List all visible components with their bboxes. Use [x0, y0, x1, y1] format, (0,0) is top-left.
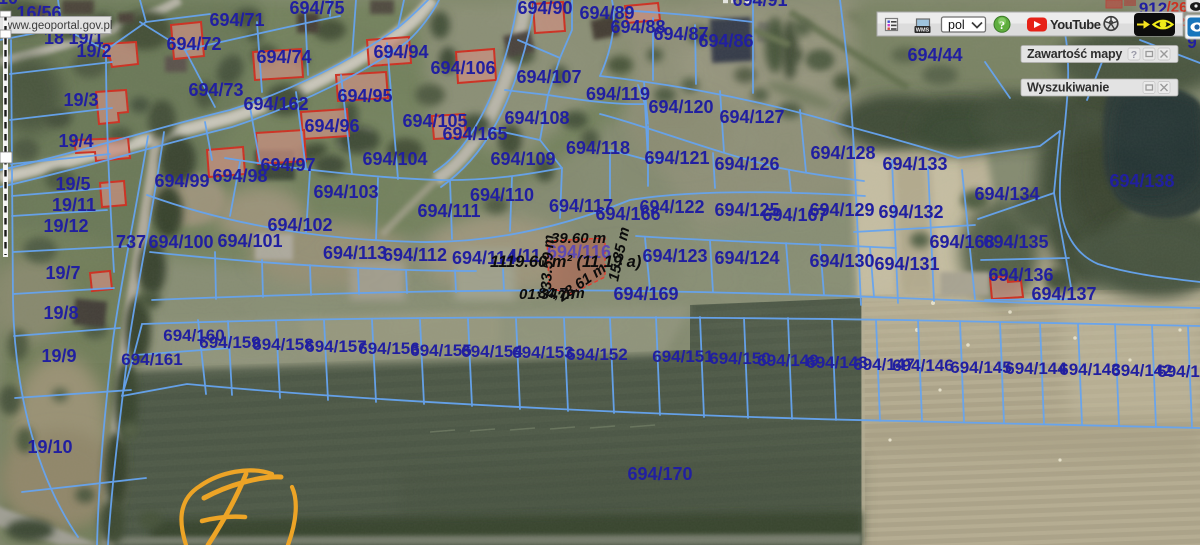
- svg-text:694/132: 694/132: [878, 202, 943, 222]
- svg-text:694/123: 694/123: [642, 246, 707, 266]
- svg-text:19/8: 19/8: [43, 303, 78, 323]
- svg-text:694/74: 694/74: [256, 47, 311, 67]
- svg-text:694/112: 694/112: [383, 245, 447, 265]
- svg-text:694/118: 694/118: [566, 138, 630, 158]
- svg-text:694/100: 694/100: [148, 232, 213, 252]
- svg-text:694/73: 694/73: [188, 80, 243, 100]
- svg-text:694/107: 694/107: [516, 67, 581, 87]
- svg-text:694/119: 694/119: [586, 84, 650, 104]
- svg-text:694/106: 694/106: [430, 58, 495, 78]
- svg-text:694/145: 694/145: [950, 358, 1011, 377]
- svg-text:www.geoportal.gov.pl: www.geoportal.gov.pl: [3, 20, 112, 32]
- svg-text:19/3: 19/3: [63, 90, 98, 110]
- svg-text:694/91: 694/91: [732, 0, 787, 10]
- svg-text:694/134: 694/134: [974, 184, 1039, 204]
- svg-text:694/131: 694/131: [874, 254, 939, 274]
- svg-text:694/120: 694/120: [648, 97, 713, 117]
- svg-text:19/4: 19/4: [58, 131, 93, 151]
- svg-text:694/161: 694/161: [121, 350, 182, 369]
- svg-text:694/121: 694/121: [644, 148, 709, 168]
- svg-text:694/103: 694/103: [313, 182, 378, 202]
- svg-text:694/137: 694/137: [1031, 284, 1096, 304]
- svg-text:694/95: 694/95: [337, 86, 392, 106]
- svg-text:694/133: 694/133: [882, 154, 947, 174]
- svg-text:694/169: 694/169: [613, 284, 678, 304]
- svg-text:694/124: 694/124: [714, 248, 779, 268]
- svg-text:694/135: 694/135: [983, 232, 1048, 252]
- svg-text:694/146: 694/146: [892, 356, 953, 375]
- svg-text:694/109: 694/109: [490, 149, 555, 169]
- svg-text:10: 10: [0, 0, 18, 8]
- svg-text:737: 737: [116, 232, 146, 252]
- svg-text:19/5: 19/5: [55, 174, 90, 194]
- svg-text:pol: pol: [948, 18, 965, 32]
- svg-text:WMS: WMS: [916, 28, 930, 34]
- svg-text:694/101: 694/101: [217, 231, 282, 251]
- svg-text:694/165: 694/165: [442, 124, 507, 144]
- svg-text:694/152: 694/152: [566, 345, 627, 364]
- svg-text:694/153: 694/153: [512, 343, 573, 362]
- svg-text:694/90: 694/90: [517, 0, 572, 18]
- svg-text:694/151: 694/151: [652, 347, 713, 366]
- svg-text:694/71: 694/71: [209, 10, 264, 30]
- svg-text:694/104: 694/104: [362, 149, 427, 169]
- svg-text:84,7 m: 84,7 m: [538, 285, 585, 302]
- svg-text:19/9: 19/9: [41, 346, 76, 366]
- svg-text:694/108: 694/108: [504, 108, 569, 128]
- svg-text:694/126: 694/126: [714, 154, 779, 174]
- svg-text:Zawartość mapy: Zawartość mapy: [1027, 47, 1122, 61]
- svg-text:694/136: 694/136: [988, 265, 1053, 285]
- svg-text:694/144: 694/144: [1005, 359, 1067, 378]
- svg-text:19/2: 19/2: [76, 41, 111, 61]
- svg-text:19/10: 19/10: [27, 437, 72, 457]
- svg-text:YouTube: YouTube: [1050, 17, 1101, 32]
- svg-text:694/170: 694/170: [627, 464, 692, 484]
- svg-text:694/127: 694/127: [719, 107, 784, 127]
- svg-text:694/130: 694/130: [809, 251, 874, 271]
- svg-text:694/122: 694/122: [639, 197, 704, 217]
- svg-text:694/98: 694/98: [212, 166, 267, 186]
- svg-text:?: ?: [1131, 49, 1137, 61]
- svg-text:694/99: 694/99: [154, 171, 209, 191]
- svg-text:33.59 m: 33.59 m: [538, 234, 558, 290]
- svg-text:694/72: 694/72: [166, 34, 221, 54]
- svg-text:694/94: 694/94: [373, 42, 428, 62]
- svg-text:694/138: 694/138: [1109, 171, 1174, 191]
- svg-text:694/86: 694/86: [698, 31, 753, 51]
- svg-text:694/44: 694/44: [907, 45, 962, 65]
- svg-text:?: ?: [999, 18, 1005, 32]
- svg-text:694/96: 694/96: [304, 116, 359, 136]
- svg-text:694/129: 694/129: [809, 200, 874, 220]
- svg-text:694/113: 694/113: [323, 243, 387, 263]
- svg-text:694/75: 694/75: [289, 0, 344, 18]
- svg-text:19/12: 19/12: [43, 216, 88, 236]
- svg-text:694/141: 694/141: [1157, 362, 1200, 381]
- svg-text:19/11: 19/11: [52, 195, 96, 215]
- svg-text:694/111: 694/111: [417, 201, 480, 221]
- svg-text:694/97: 694/97: [260, 155, 315, 175]
- svg-text:39.60 m: 39.60 m: [551, 230, 606, 247]
- svg-text:Wyszukiwanie: Wyszukiwanie: [1027, 81, 1109, 95]
- svg-text:694/128: 694/128: [810, 143, 875, 163]
- svg-text:19/7: 19/7: [45, 263, 80, 283]
- svg-text:694/162: 694/162: [243, 94, 308, 114]
